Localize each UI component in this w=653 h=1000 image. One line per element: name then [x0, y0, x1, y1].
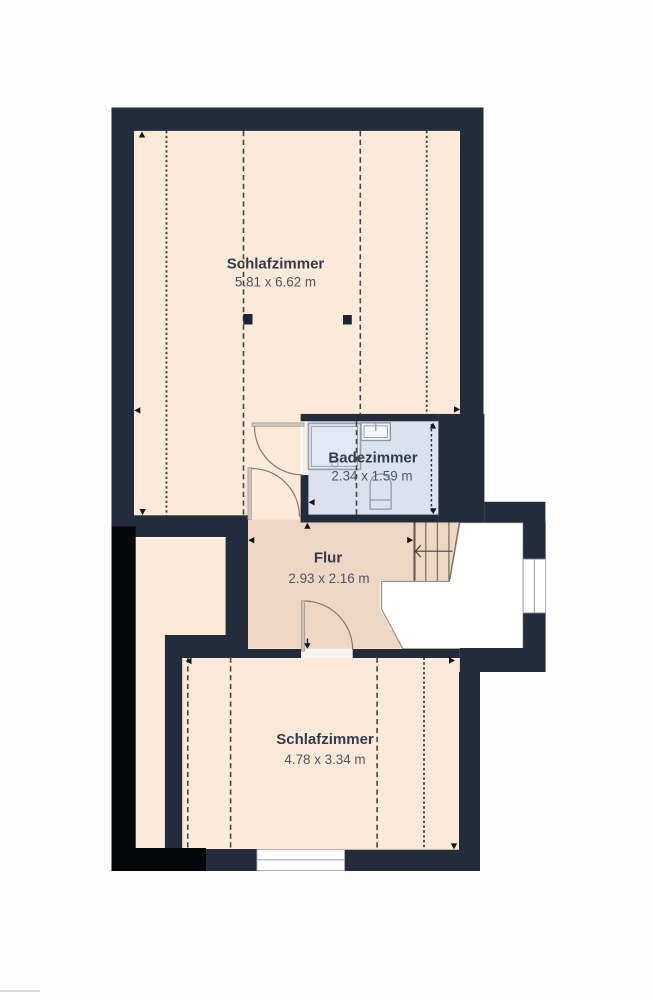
svg-text:4.78 x 3.34 m: 4.78 x 3.34 m: [284, 752, 365, 767]
svg-text:Flur: Flur: [314, 550, 342, 567]
svg-text:5.81 x 6.62 m: 5.81 x 6.62 m: [235, 274, 316, 289]
svg-text:2.93 x 2.16 m: 2.93 x 2.16 m: [288, 571, 369, 586]
svg-text:Badezimmer: Badezimmer: [328, 450, 417, 467]
svg-text:Schlafzimmer: Schlafzimmer: [227, 256, 325, 273]
svg-text:Schlafzimmer: Schlafzimmer: [276, 731, 374, 748]
svg-text:2.34 x 1.59 m: 2.34 x 1.59 m: [331, 469, 412, 484]
